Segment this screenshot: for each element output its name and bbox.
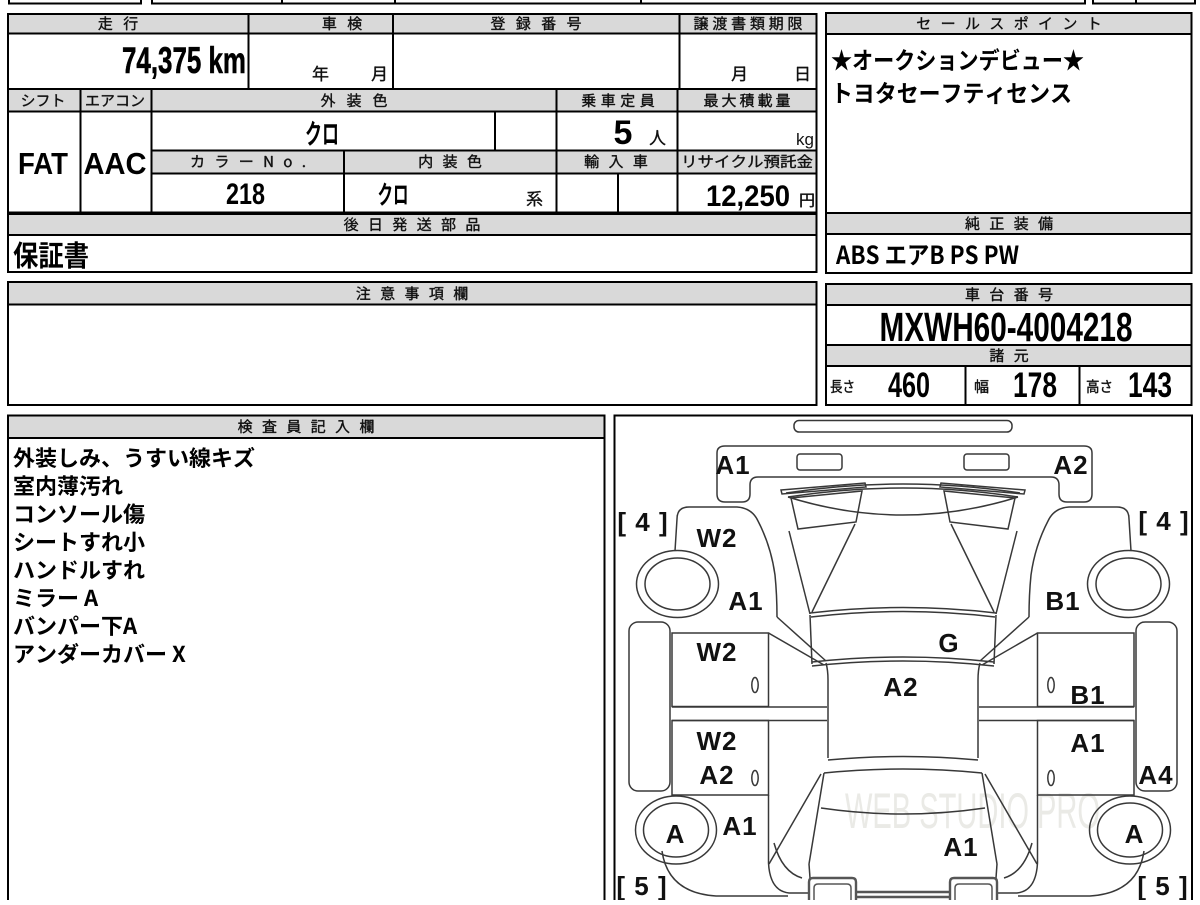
svg-text:A1: A1 — [715, 450, 750, 480]
svg-text:A4: A4 — [1138, 760, 1173, 790]
svg-text:178: 178 — [1013, 366, 1057, 405]
svg-text:74,375 km: 74,375 km — [122, 40, 246, 81]
svg-text:[ 4 ]: [ 4 ] — [1138, 506, 1189, 536]
svg-text:W2: W2 — [697, 726, 738, 756]
svg-text:A1: A1 — [1070, 728, 1105, 758]
svg-text:A: A — [1125, 819, 1144, 849]
svg-text:MXWH60-4004218: MXWH60-4004218 — [880, 304, 1133, 350]
svg-text:[ 5 ]: [ 5 ] — [616, 871, 667, 900]
svg-text:AAC: AAC — [84, 146, 147, 181]
svg-text:WEB STUDIO PRO: WEB STUDIO PRO — [845, 783, 1100, 839]
svg-text:A1: A1 — [722, 811, 757, 841]
svg-text:A1: A1 — [728, 586, 763, 616]
svg-text:W2: W2 — [697, 523, 738, 553]
svg-text:460: 460 — [888, 366, 930, 405]
svg-text:FAT: FAT — [18, 146, 68, 181]
svg-text:A2: A2 — [699, 760, 734, 790]
svg-text:B1: B1 — [1045, 586, 1080, 616]
svg-text:5: 5 — [614, 114, 633, 152]
svg-text:[ 4 ]: [ 4 ] — [617, 507, 668, 537]
svg-text:218: 218 — [226, 178, 265, 211]
svg-text:A2: A2 — [883, 672, 918, 702]
svg-text:143: 143 — [1128, 366, 1172, 405]
svg-text:[ 5 ]: [ 5 ] — [1137, 871, 1188, 900]
svg-text:kg: kg — [796, 130, 814, 149]
svg-text:A2: A2 — [1053, 450, 1088, 480]
svg-text:A: A — [666, 819, 685, 849]
svg-text:12,250: 12,250 — [706, 180, 790, 213]
svg-text:A1: A1 — [943, 832, 978, 862]
svg-text:B1: B1 — [1070, 680, 1105, 710]
svg-text:G: G — [938, 628, 959, 658]
svg-text:W2: W2 — [697, 637, 738, 667]
